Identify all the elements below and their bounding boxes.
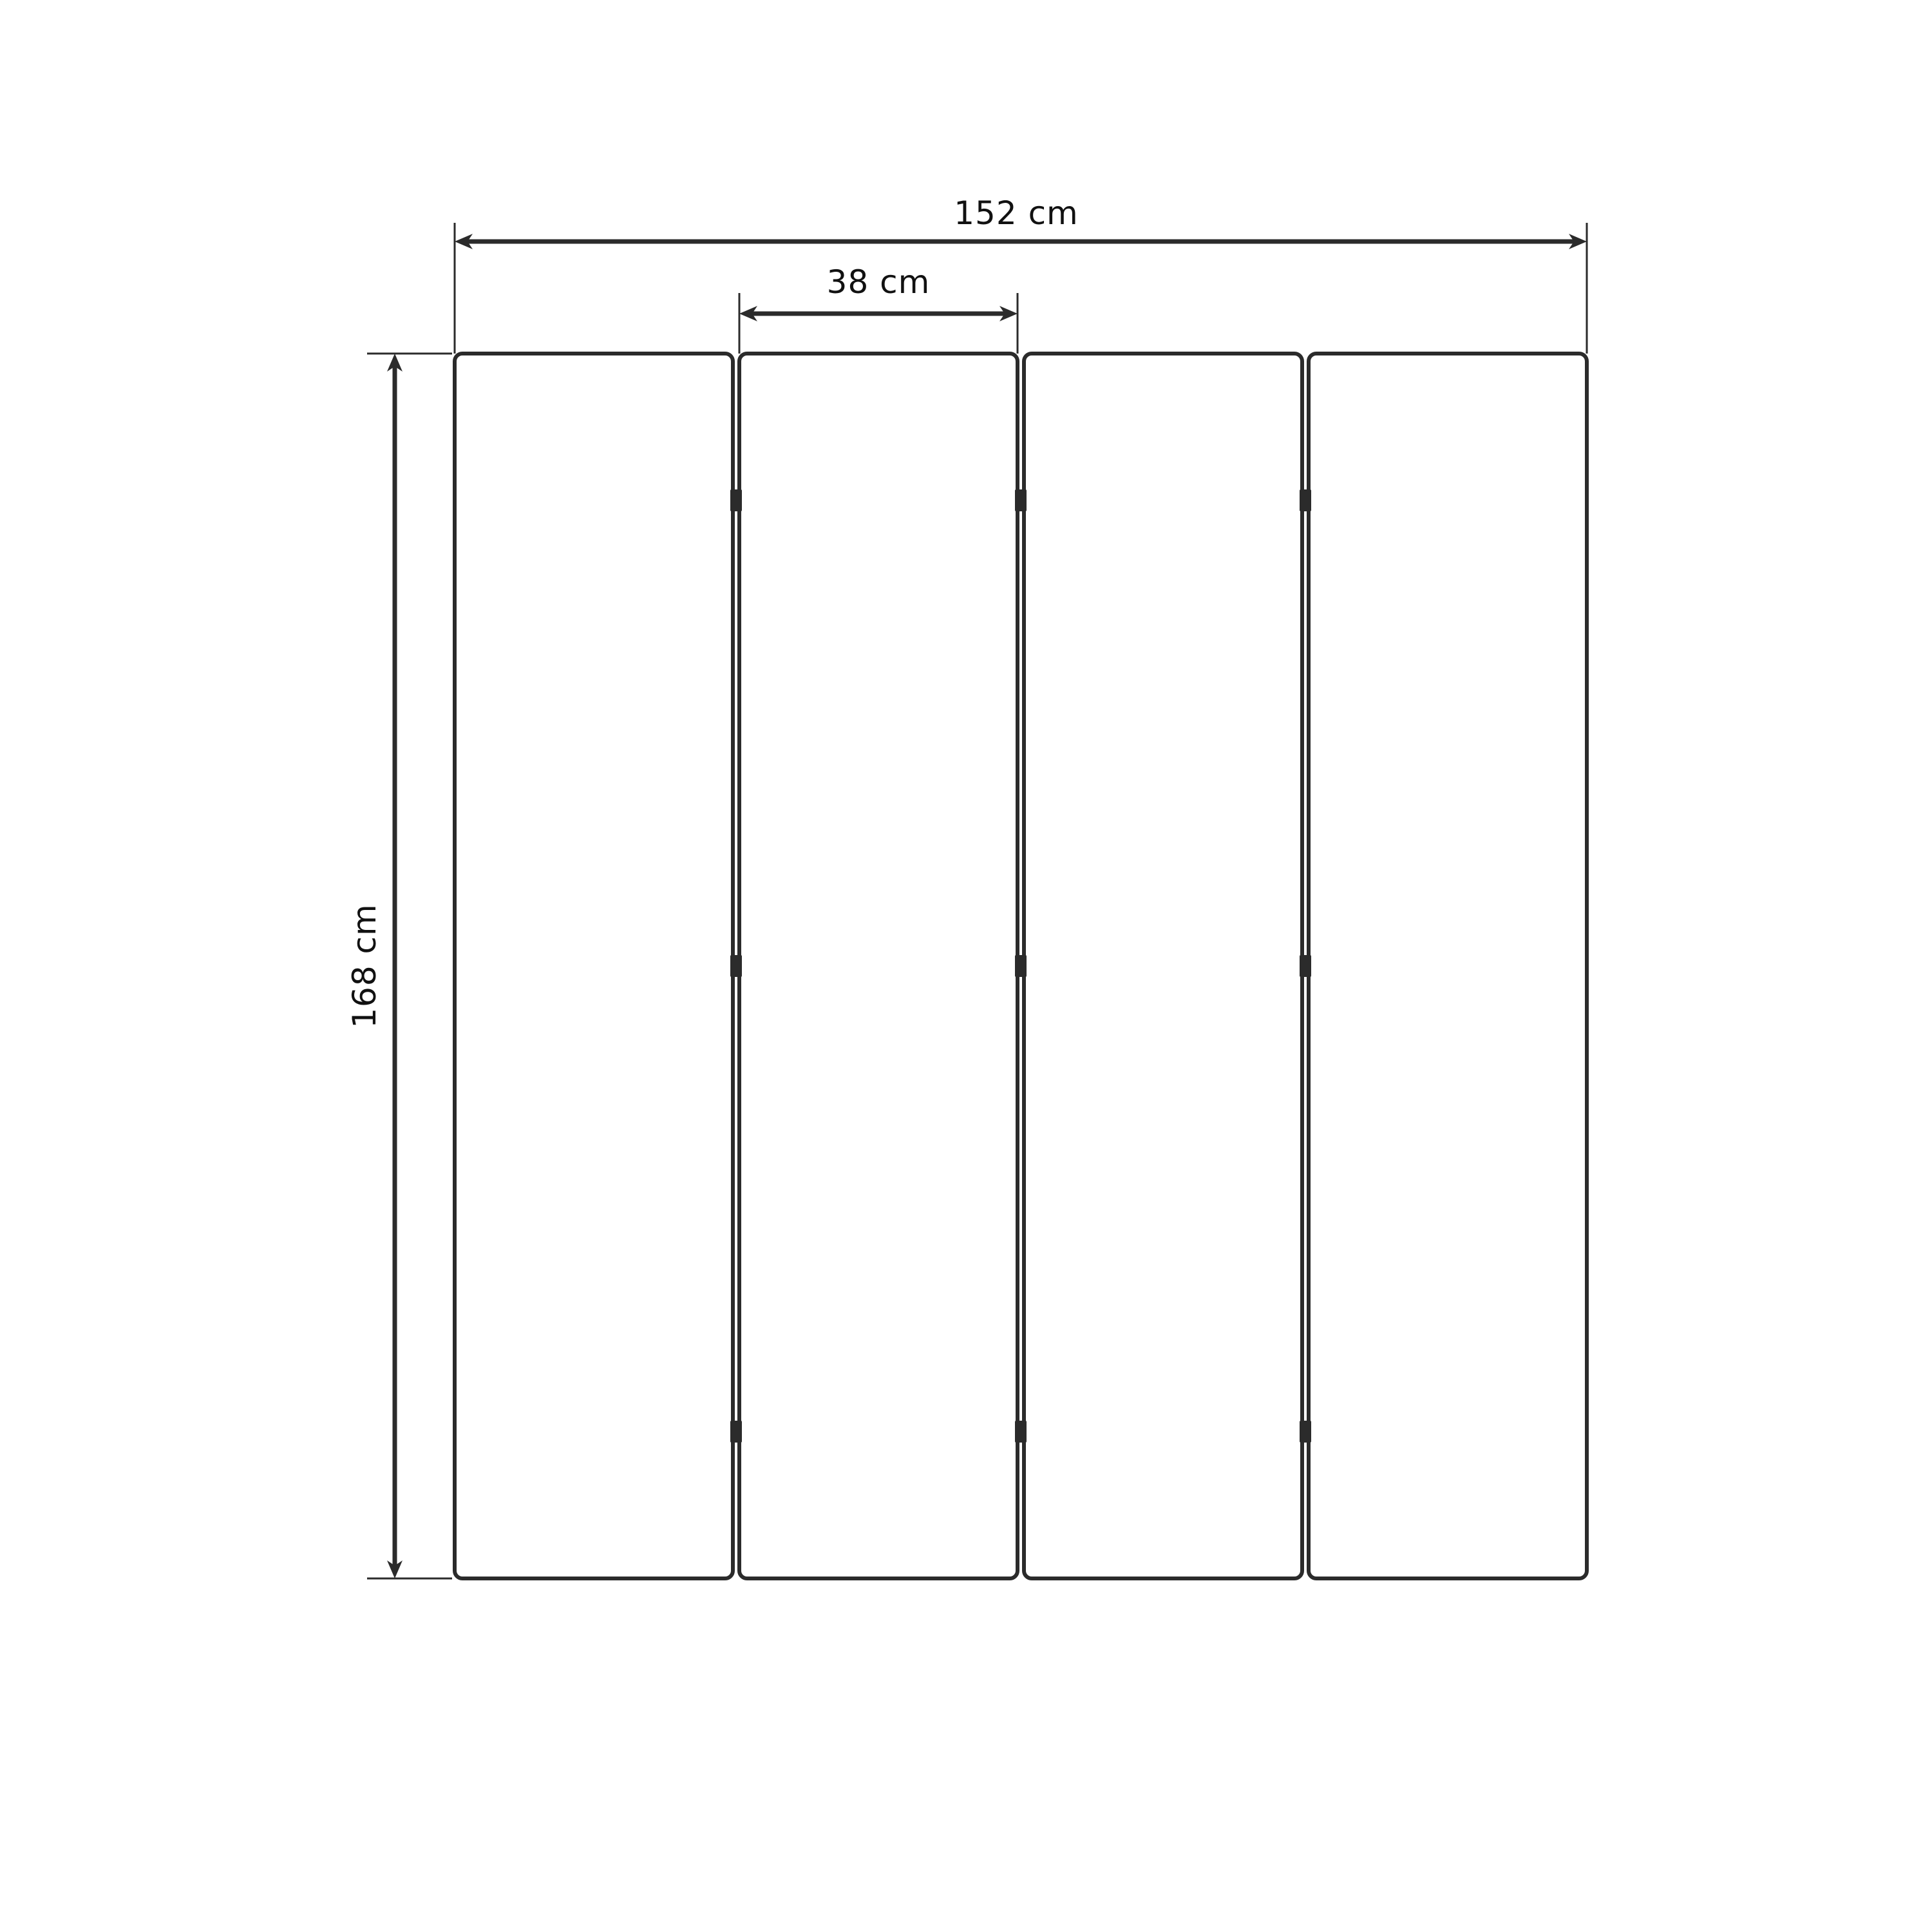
drawing-canvas: 152 cm 38 cm 168 cm	[0, 0, 1932, 1932]
technical-drawing: 152 cm 38 cm 168 cm	[0, 0, 1932, 1932]
height-label: 168 cm	[346, 904, 383, 1028]
panel-3	[1024, 354, 1302, 1578]
hinge-mark	[1015, 1421, 1027, 1443]
hinge-mark	[730, 489, 742, 511]
dimension-total-width: 152 cm	[455, 194, 1587, 354]
total-width-label: 152 cm	[954, 194, 1079, 232]
hinge-mark	[1015, 955, 1027, 977]
hinge-mark	[730, 955, 742, 977]
panel-2	[739, 354, 1018, 1578]
hinge-mark	[1015, 489, 1027, 511]
hinge-mark	[1300, 955, 1311, 977]
panel-4	[1309, 354, 1587, 1578]
hinge-mark	[1300, 489, 1311, 511]
dimension-height: 168 cm	[346, 354, 452, 1578]
hinge-mark	[730, 1421, 742, 1443]
hinge-mark	[1300, 1421, 1311, 1443]
panel-1	[455, 354, 733, 1578]
panel-width-label: 38 cm	[827, 263, 931, 301]
dimension-panel-width: 38 cm	[739, 263, 1018, 354]
